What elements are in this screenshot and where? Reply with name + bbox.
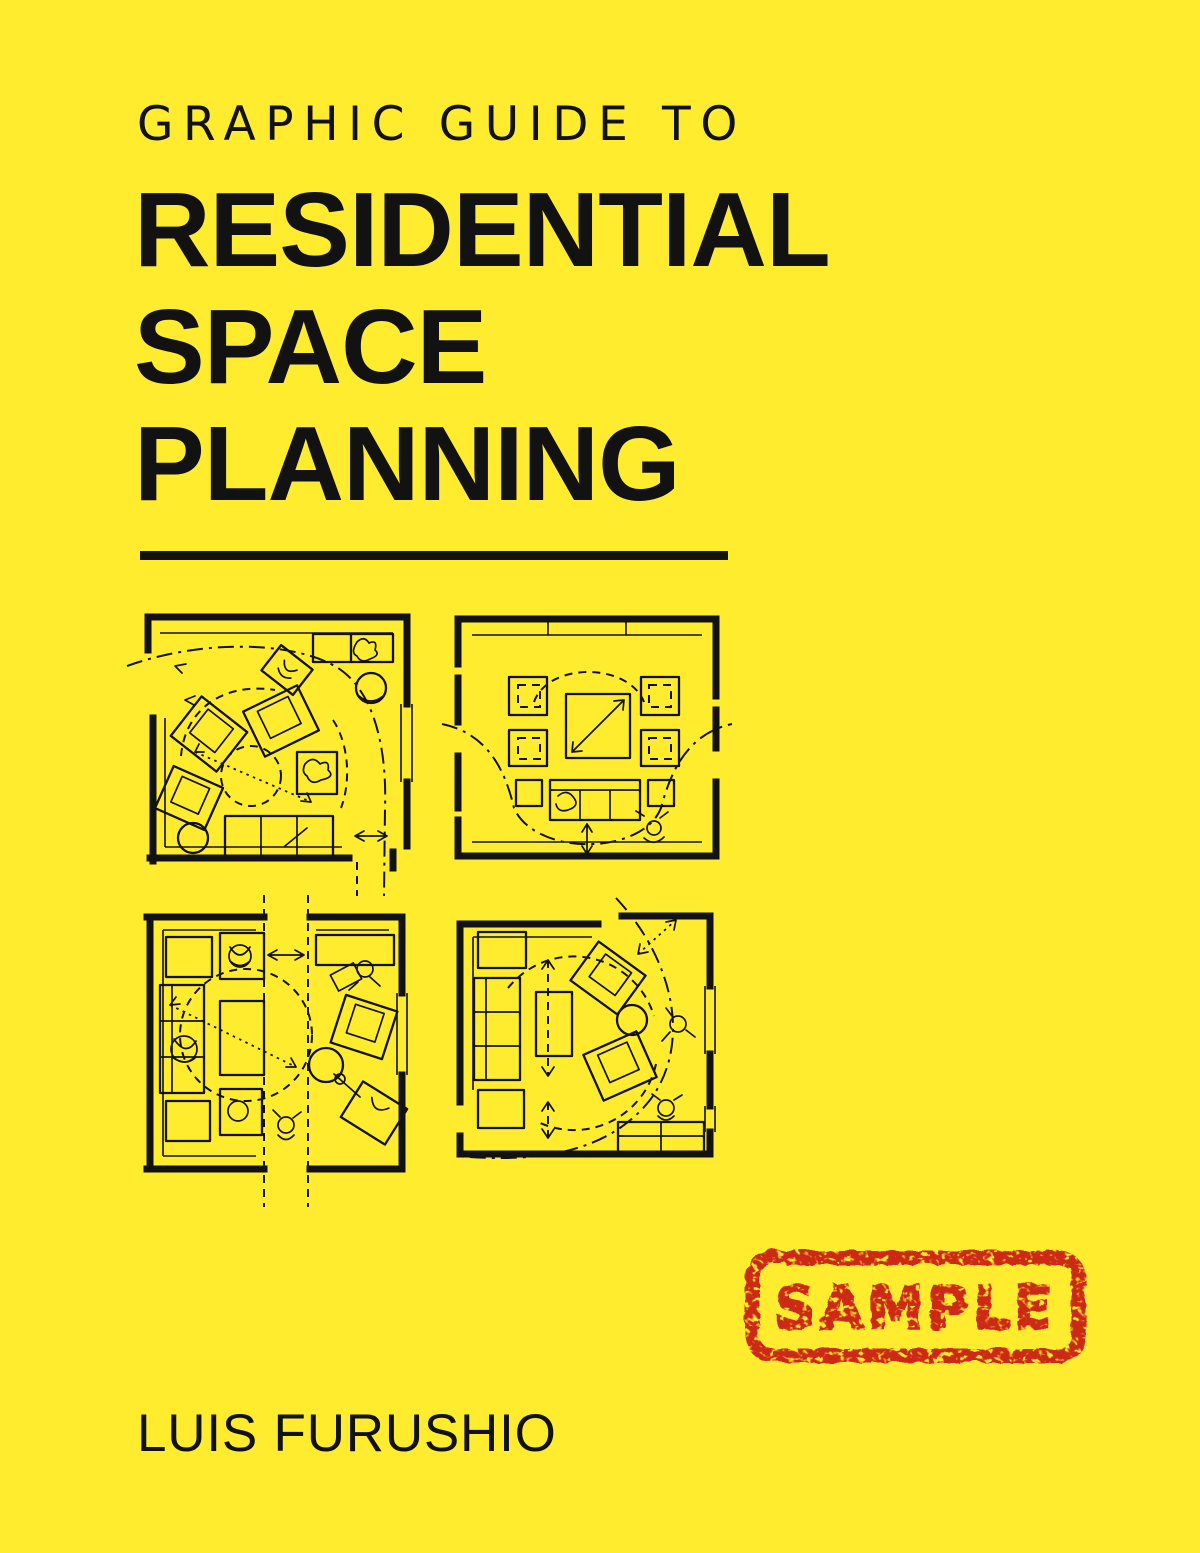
sample-stamp-icon: SAMPLE — [738, 1246, 1090, 1364]
cover-kicker: GRAPHIC GUIDE TO — [137, 101, 747, 148]
floor-plan-curved-circulation — [446, 896, 728, 1218]
floor-plan-curved-circulation-icon — [446, 896, 728, 1218]
sample-stamp: SAMPLE — [738, 1246, 1090, 1364]
cover-title: RESIDENTIAL SPACE PLANNING — [134, 172, 830, 523]
title-rule — [140, 551, 728, 560]
author-name: LUIS FURUSHIO — [137, 1407, 557, 1460]
title-line-1: RESIDENTIAL — [134, 172, 830, 289]
title-line-3: PLANNING — [134, 406, 830, 523]
floor-plan-split-corridor-icon — [134, 893, 444, 1209]
book-cover: { "colors":{ "background_yellow":"#FFEC2… — [0, 0, 1200, 1553]
floor-plan-square-table-four-chairs — [448, 604, 726, 870]
title-line-2: SPACE — [134, 289, 830, 406]
floor-plan-corner-living-room-icon — [135, 600, 441, 896]
floor-plan-split-corridor — [134, 893, 444, 1209]
stamp-label: SAMPLE — [773, 1272, 1055, 1342]
floor-plan-corner-living-room — [135, 600, 441, 896]
floor-plan-square-table-four-chairs-icon — [448, 604, 726, 870]
